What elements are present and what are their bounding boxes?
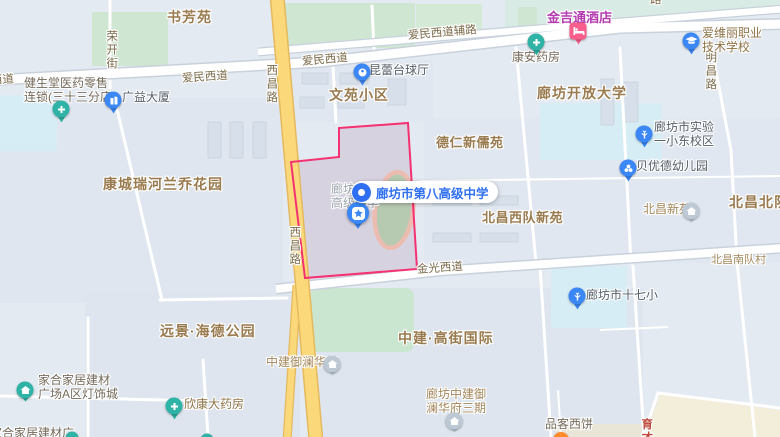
pin-zhongjian-yulan[interactable] (324, 356, 341, 373)
cross-icon (528, 34, 545, 51)
poi-xinkang-pharmacy-label: 欣康大药房 (184, 398, 244, 412)
pin-beiyoude-kindergarten[interactable] (620, 160, 637, 177)
poi-jiahe-homestore-label-line1: 家合家居建材 (38, 374, 118, 388)
road-xichang-mid: 西昌路 (287, 226, 300, 267)
house-icon (17, 382, 34, 399)
pin-kangan-pharmacy[interactable] (528, 34, 545, 51)
school-badge-icon (347, 202, 369, 224)
house-icon (683, 203, 700, 220)
house-icon (446, 413, 463, 430)
pin-xinkang-pharmacy[interactable] (166, 398, 183, 415)
area-langfang-open-university: 廊坊开放大学 (537, 85, 627, 101)
pin-jiahe-homestore[interactable] (17, 382, 34, 399)
poi-aiweili-school-label-line2: 技术学校 (702, 41, 762, 55)
map-viewport[interactable]: 廊坊市第 高级中学 书芳苑文苑小区康城瑞河兰乔花园德仁新儒苑廊坊开放大学北昌西队… (0, 0, 780, 437)
pin-jianshengtang-pharmacy[interactable] (53, 101, 70, 118)
road-top-partial: 路 (650, 0, 662, 7)
pin-edge-dot-left[interactable] (66, 432, 79, 437)
pin-shiqixiao-school[interactable] (569, 288, 586, 305)
poi-aiweili-school-label: 爱维丽职业技术学校 (702, 27, 762, 55)
poi-shiqixiao-school-label: 廊坊市十七小 (586, 289, 658, 303)
bed-icon (570, 23, 587, 40)
house-icon (324, 356, 341, 373)
building-icon (105, 92, 122, 109)
area-yuanjing-haide-park: 远景·海德公园 (160, 323, 256, 339)
pin-shiyan-school[interactable] (636, 126, 653, 143)
poi-shiyan-school-label: 廊坊市实验一小东校区 (654, 121, 714, 149)
cap-icon (683, 33, 700, 50)
area-deren-xinruyuan: 德仁新儒苑 (436, 136, 504, 151)
poi-jianshengtang-pharmacy-label: 健生堂医药零售连锁(三十三分店) (24, 77, 116, 105)
pin-yulan-phase3[interactable] (446, 413, 463, 430)
pin-guangyi-building[interactable] (105, 92, 122, 109)
road-rongkai-street: 荣开街 (104, 30, 117, 71)
poi-guangyi-building-label: 广益大厦 (122, 91, 170, 105)
tree-icon (636, 126, 653, 143)
poi-shiyan-school-label-line2: 一小东校区 (654, 135, 714, 149)
poi-bottom-edge-partial: 家合家居建材广 (0, 427, 74, 437)
poi-aiweili-school-label-line1: 爱维丽职业 (702, 27, 762, 41)
poi-jiahe-homestore-label: 家合家居建材广场A区灯饰城 (38, 374, 118, 402)
poi-beiyoude-kindergarten-label: 贝优德幼儿园 (636, 160, 708, 174)
pin-pinke-bakery[interactable] (553, 432, 569, 437)
poi-yulan-phase3-label: 廊坊中建御澜华府三期 (426, 388, 486, 416)
flower-icon (620, 160, 637, 177)
area-beichang-north: 北昌北队 (729, 194, 780, 210)
cross-icon (53, 101, 70, 118)
area-beichang-south-village: 北昌南队村 (711, 254, 766, 267)
tree-icon (569, 288, 586, 305)
road-aimin-west-partial: 西道 (0, 73, 14, 88)
search-result-callout[interactable]: 廊坊市第八高级中学 (351, 181, 498, 203)
pin-pinke-bakery-icon (553, 432, 569, 437)
road-mingchang: 明昌路 (703, 51, 716, 92)
area-beichang-west-xinyuan: 北昌西队新苑 (482, 211, 563, 226)
road-yucai: 育才 (639, 418, 652, 437)
area-kangcheng-ruihe-lanqiao: 康城瑞河兰乔花园 (103, 176, 223, 192)
pin-edge-dot-left-icon (66, 432, 79, 437)
area-wenyuan-xiaoqu: 文苑小区 (329, 87, 389, 103)
billiard-icon (354, 64, 371, 81)
pin-jinjitong-hotel[interactable] (570, 23, 587, 40)
pin-aiweili-school[interactable] (683, 33, 700, 50)
area-zhongjian-gaojie-intl: 中建·高街国际 (398, 330, 494, 346)
poi-jianshengtang-pharmacy-label-line1: 健生堂医药零售 (24, 77, 116, 91)
poi-location-icon (352, 183, 371, 202)
selected-poi-pin[interactable] (347, 202, 369, 224)
poi-yulan-phase3-label-line1: 廊坊中建御 (426, 388, 486, 402)
poi-kunlei-billiards-label: 昆蕾台球厅 (369, 64, 429, 78)
pin-beichang-xinyuan[interactable] (683, 203, 700, 220)
area-shufangyuan: 书芳苑 (167, 9, 212, 25)
pin-edge-dot-mid-icon (201, 434, 214, 437)
poi-jianshengtang-pharmacy-label-line2: 连锁(三十三分店) (24, 91, 116, 105)
poi-shiyan-school-label-line1: 廊坊市实验 (654, 121, 714, 135)
cross-icon (166, 398, 183, 415)
road-xichang-top: 西昌路 (264, 64, 277, 105)
pin-edge-dot-mid[interactable] (201, 434, 214, 437)
selected-poi-name: 廊坊市第八高级中学 (376, 183, 489, 202)
poi-pinke-bakery-label: 品客西饼 (545, 418, 593, 432)
pin-kunlei-billiards[interactable] (354, 64, 371, 81)
poi-jiahe-homestore-label-line2: 广场A区灯饰城 (38, 388, 118, 402)
